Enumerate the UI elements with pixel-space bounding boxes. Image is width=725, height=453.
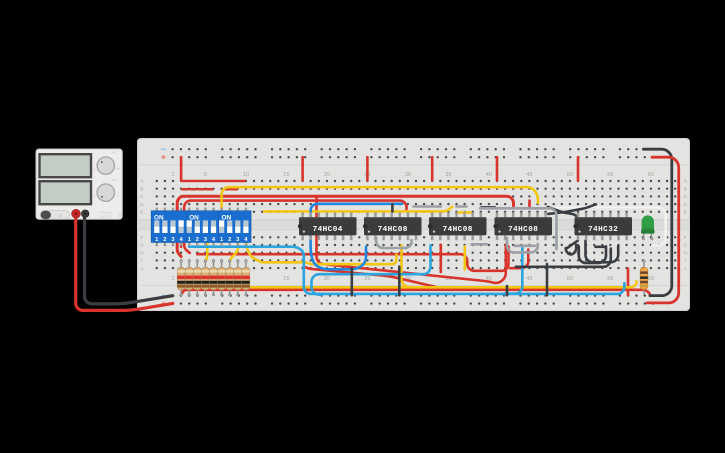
svg-text:50: 50	[567, 172, 573, 178]
svg-text:20: 20	[324, 276, 330, 282]
svg-text:74HC08: 74HC08	[508, 226, 538, 234]
svg-text:B: B	[684, 186, 687, 192]
svg-text:F: F	[140, 235, 143, 241]
svg-text:C: C	[683, 194, 687, 200]
svg-text:E: E	[684, 210, 687, 216]
svg-text:B: B	[140, 186, 143, 192]
svg-text:H: H	[683, 250, 687, 256]
svg-text:15: 15	[283, 276, 289, 282]
svg-text:E: E	[140, 210, 143, 216]
svg-text:ON: ON	[154, 214, 164, 221]
svg-text:G: G	[140, 243, 144, 249]
svg-text:H: H	[140, 250, 144, 256]
svg-text:o|: o|	[59, 214, 62, 218]
svg-text:74HC08: 74HC08	[443, 226, 473, 234]
svg-text:45: 45	[526, 172, 532, 178]
svg-text:55: 55	[607, 172, 613, 178]
svg-text:74HC08: 74HC08	[378, 226, 408, 234]
svg-text:20: 20	[324, 172, 330, 178]
svg-text:15: 15	[283, 172, 289, 178]
svg-text:D: D	[683, 202, 687, 208]
svg-text:D: D	[140, 202, 144, 208]
svg-text:ON: ON	[189, 214, 199, 221]
svg-text:45: 45	[526, 276, 532, 282]
svg-text:I: I	[141, 258, 142, 264]
svg-text:Ƨ: Ƨ	[119, 212, 123, 219]
svg-text:74HC04: 74HC04	[313, 226, 343, 234]
svg-text:G: G	[683, 243, 687, 249]
svg-text:V: V	[117, 193, 119, 197]
svg-text:25: 25	[364, 276, 370, 282]
svg-text:60: 60	[648, 276, 654, 282]
svg-text:mA: mA	[116, 166, 120, 170]
svg-text:10: 10	[243, 172, 249, 178]
svg-text:C: C	[140, 194, 144, 200]
svg-text:O-C: O-C	[112, 151, 117, 155]
svg-text:SUPPLY: SUPPLY	[99, 215, 113, 219]
svg-text:35: 35	[445, 172, 451, 178]
svg-text:ON: ON	[222, 214, 232, 221]
svg-text:60: 60	[648, 172, 654, 178]
svg-text:1: 1	[171, 172, 174, 178]
svg-text:30: 30	[405, 172, 411, 178]
svg-text:5: 5	[204, 172, 207, 178]
svg-text:2: 2	[163, 237, 166, 243]
svg-text:1: 1	[171, 276, 174, 282]
svg-text:2: 2	[228, 237, 231, 243]
svg-text:55: 55	[607, 276, 613, 282]
svg-text:I: I	[685, 258, 686, 264]
svg-text:40: 40	[486, 172, 492, 178]
svg-text:74HC32: 74HC32	[588, 226, 618, 234]
svg-text:O-C: O-C	[112, 178, 117, 182]
svg-text:2: 2	[196, 237, 199, 243]
svg-text:F: F	[684, 235, 687, 241]
svg-text:50: 50	[567, 276, 573, 282]
